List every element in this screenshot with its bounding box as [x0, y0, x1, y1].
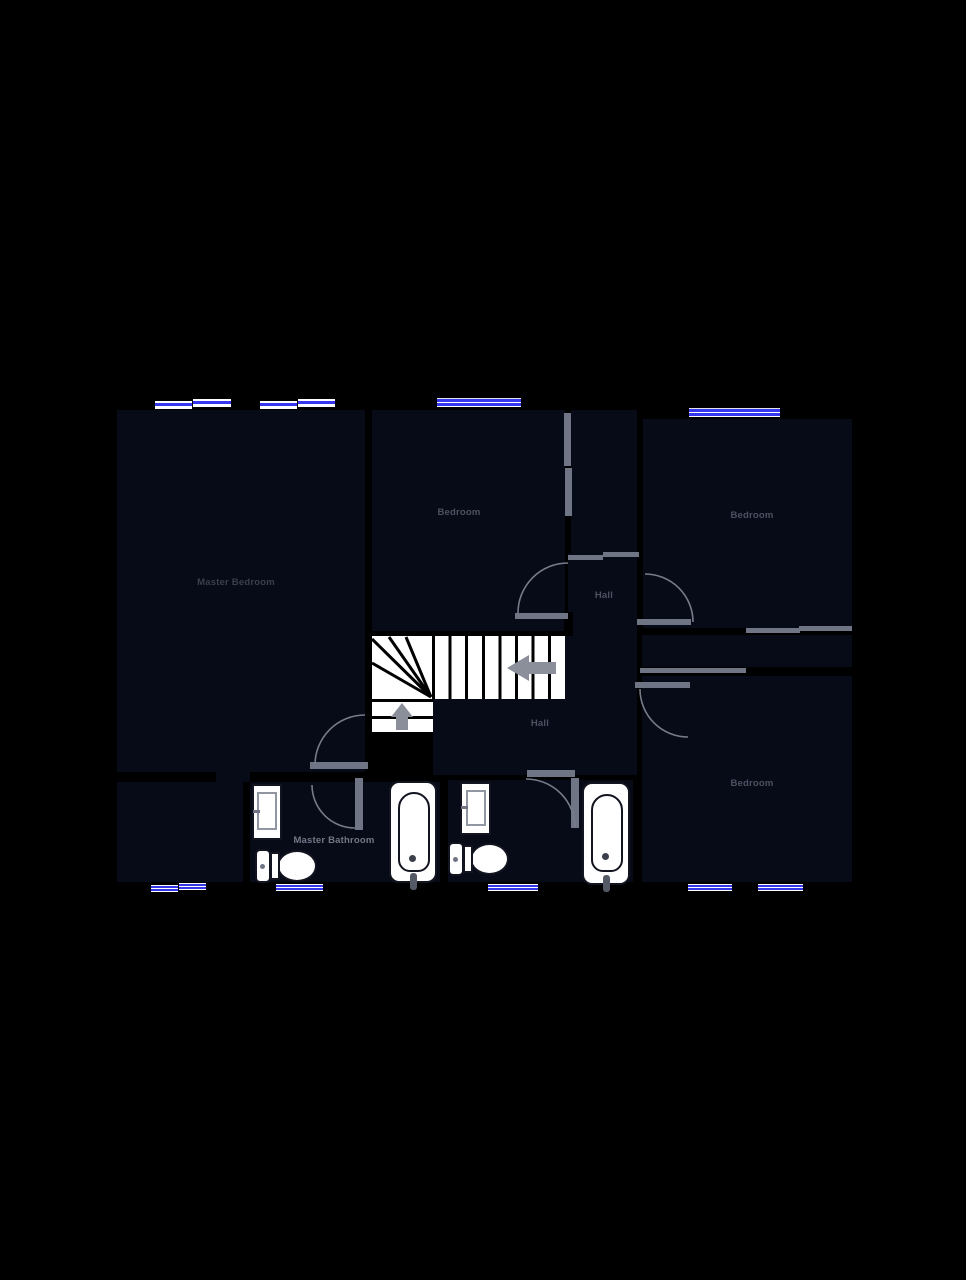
window: [179, 883, 206, 890]
room-bedroom-top-right: [643, 419, 852, 628]
room-closet-right: [642, 635, 852, 667]
window: [155, 401, 192, 409]
sink: [460, 782, 491, 835]
bathtub: [582, 782, 630, 885]
window: [688, 884, 732, 891]
room-label-bedroom-bottom-right: Bedroom: [692, 778, 812, 789]
sink-basin: [466, 790, 486, 826]
window: [276, 884, 323, 891]
closet-sliding-door: [564, 413, 571, 466]
window: [758, 884, 803, 891]
room-label-hall-lower: Hall: [500, 718, 580, 729]
staircase-lower-tread-line: [372, 716, 433, 719]
sink-tap: [253, 810, 260, 813]
toilet-seat: [463, 845, 473, 873]
toilet-bowl: [277, 850, 317, 882]
toilet-seat: [270, 852, 280, 880]
toilet-bowl: [470, 843, 509, 875]
closet-sliding-door: [565, 468, 572, 516]
window: [437, 398, 521, 407]
sink: [252, 784, 282, 840]
closet-right-sliding-door: [799, 626, 852, 631]
staircase-treads: [432, 636, 565, 699]
sink-basin: [257, 792, 277, 830]
bathtub-drain: [409, 855, 416, 862]
toilet-flush-button: [453, 857, 458, 862]
window: [689, 408, 780, 417]
closet-right-sliding-door: [746, 628, 800, 633]
bathtub-drain: [602, 853, 609, 860]
room-label-bedroom-top-middle: Bedroom: [399, 507, 519, 518]
window: [151, 885, 178, 892]
room-walk-in-closet: [117, 782, 243, 882]
door-leaf-master-bedroom: [310, 762, 368, 769]
door-leaf-bedroom-top-right: [637, 619, 691, 625]
hall-sliding-door: [568, 555, 603, 560]
window: [260, 401, 297, 409]
window: [193, 399, 231, 407]
door-leaf-bathroom-2: [527, 770, 575, 777]
room-label-master-bathroom: Master Bathroom: [254, 835, 414, 846]
toilet-tank: [448, 842, 464, 876]
door-jamb-bathroom-2: [571, 778, 579, 828]
window: [298, 399, 335, 407]
doorway-closet-gap: [216, 772, 250, 782]
bathtub: [389, 781, 437, 883]
bathtub-basin: [591, 794, 623, 872]
room-label-hall-upper: Hall: [564, 590, 644, 601]
door-leaf-bedroom-bottom-right: [635, 682, 690, 688]
door-leaf-bedroom-middle: [515, 613, 568, 619]
door-leaf-master-bathroom: [355, 778, 363, 830]
window: [488, 884, 538, 891]
bathtub-faucet: [410, 873, 417, 890]
floor-plan-canvas: Master Bedroom Bedroom Bedroom Bedroom H…: [0, 0, 966, 1280]
room-bedroom-top-middle: [372, 410, 565, 631]
room-label-master-bedroom: Master Bedroom: [156, 577, 316, 588]
bathtub-faucet: [603, 875, 610, 892]
room-label-bedroom-top-right: Bedroom: [692, 510, 812, 521]
sink-tap: [461, 806, 468, 809]
room-master-bedroom: [117, 410, 365, 772]
hall-sliding-door: [603, 552, 639, 557]
toilet-tank: [255, 849, 271, 883]
room-closet-top: [571, 410, 637, 553]
closet-right-sliding-door: [640, 668, 746, 673]
toilet-flush-button: [260, 864, 265, 869]
